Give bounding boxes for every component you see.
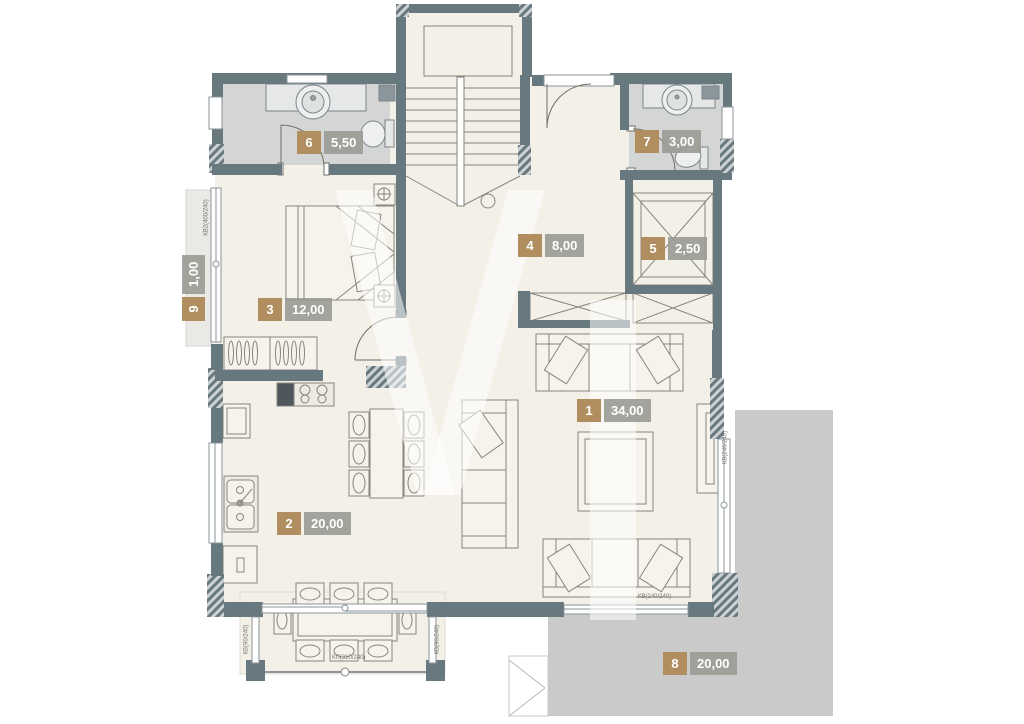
room-label-8: 8 20,00	[663, 652, 737, 675]
room-number: 1	[577, 399, 601, 422]
balcony-left-window-label: КВ(90/240)	[244, 618, 251, 662]
room-label-7: 7 3,00	[635, 130, 701, 153]
window	[287, 75, 327, 83]
terrace-floor	[735, 410, 833, 716]
room-area: 8,00	[545, 234, 584, 257]
room-label-2: 2 20,00	[277, 512, 351, 535]
room-number: 4	[518, 234, 542, 257]
balcony-right-window-label: КВ(90/240)	[435, 618, 442, 662]
floor-plan-canvas	[0, 0, 1024, 724]
room-number: 9	[182, 297, 205, 321]
room-area: 12,00	[285, 298, 332, 321]
room-number: 8	[663, 652, 687, 675]
chair	[349, 470, 369, 496]
room-area: 20,00	[304, 512, 351, 535]
window	[209, 97, 222, 129]
room-number: 7	[635, 130, 659, 153]
room-area: 34,00	[604, 399, 651, 422]
window	[252, 617, 259, 663]
room-area: 20,00	[690, 652, 737, 675]
room-label-3: 3 12,00	[258, 298, 332, 321]
toilet-bowl	[361, 121, 385, 147]
floor-plan: 1 34,00 2 20,00 3 12,00 4 8,00 5 2,50 6 …	[0, 0, 1024, 724]
bedroom-window-label: КВ2(400/240)	[204, 193, 211, 243]
living-bottom-window-label: КВ(240/240)	[638, 594, 671, 601]
dining-table	[370, 409, 403, 498]
room-label-9: 9 1,00	[182, 248, 205, 321]
stove-side	[277, 383, 294, 406]
room-number: 5	[641, 237, 665, 260]
room-label-6: 6 5,50	[297, 131, 363, 154]
room-label-5: 5 2,50	[641, 237, 707, 260]
living-right-window-label: КВ(240/240)	[723, 426, 730, 470]
room-label-1: 1 34,00	[577, 399, 651, 422]
room-area: 2,50	[668, 237, 707, 260]
fridge	[223, 546, 257, 583]
room-area: 1,00	[182, 255, 205, 294]
room-area: 5,50	[324, 131, 363, 154]
toilet-tank	[385, 120, 394, 147]
room-number: 6	[297, 131, 321, 154]
room-number: 3	[258, 298, 282, 321]
window	[722, 107, 733, 139]
chair	[349, 412, 369, 438]
balcony-door-label: КП(310/240)	[332, 655, 366, 662]
stove	[294, 383, 334, 406]
room-label-4: 4 8,00	[518, 234, 584, 257]
entry-opening	[544, 75, 614, 86]
room-number: 2	[277, 512, 301, 535]
chair	[349, 441, 369, 467]
room-area: 3,00	[662, 130, 701, 153]
